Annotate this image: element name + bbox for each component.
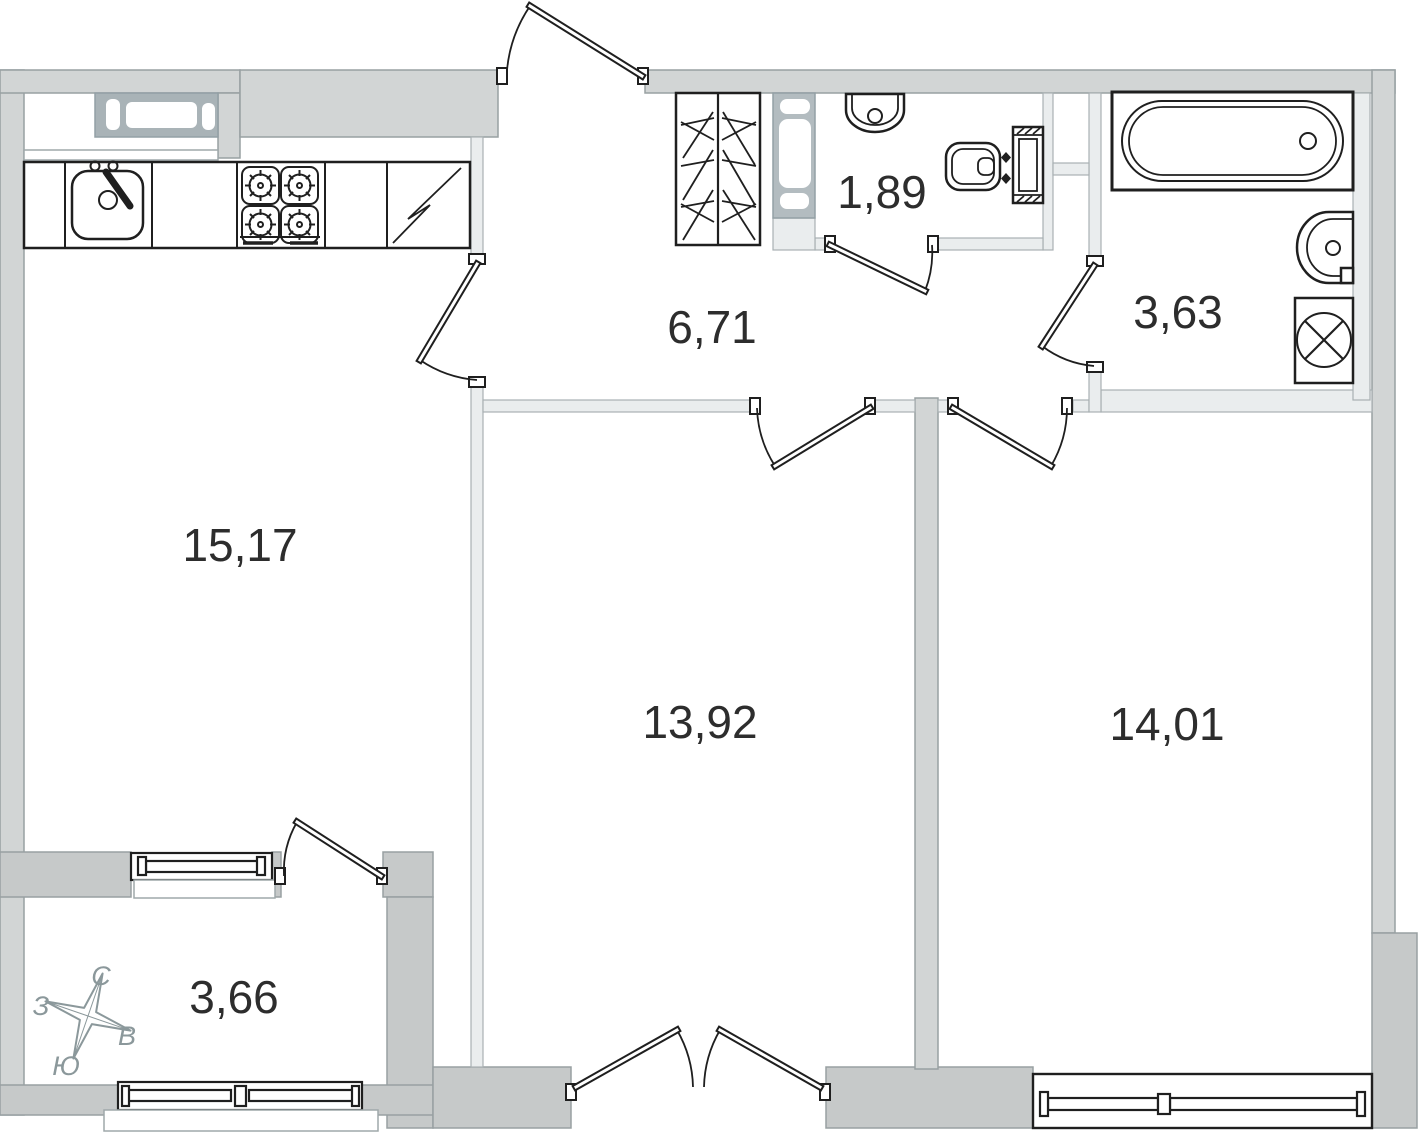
kitchen-window-sash-middle: [126, 102, 197, 128]
window2-cap-right: [1357, 1092, 1365, 1116]
vent-shaft: [773, 93, 815, 218]
toilet-washbasin: [846, 94, 904, 132]
wall-top-block: [240, 70, 498, 137]
window2-sash-right: [1170, 1098, 1357, 1110]
window2-mullion: [1158, 1094, 1170, 1114]
area-label-hallway: 6,71: [667, 301, 757, 353]
bathroom-washbasin: [1297, 212, 1353, 283]
kitchen-sink: [72, 162, 143, 240]
kitchen-window-sash-right: [202, 103, 215, 130]
area-label-balcony: 3,66: [189, 971, 279, 1023]
area-label-bedroom-1: 13,92: [642, 696, 757, 748]
window-sash: [146, 861, 258, 872]
wall-left: [0, 70, 24, 1115]
kitchen-window-sash-left: [106, 99, 120, 130]
wall-balcony-top-a: [0, 852, 131, 897]
partition-toilet-right: [1043, 93, 1053, 250]
partition-hall-b: [875, 400, 915, 412]
glazing-sash-left: [127, 1090, 231, 1101]
wall-central: [915, 398, 938, 1069]
floor-plan: 15,17 6,71 1,89 3,63 13,92 14,01 3,66 С …: [0, 0, 1428, 1134]
compass-north-label: С: [91, 961, 111, 991]
partition-kitchen-lower: [471, 385, 483, 1067]
wall-balcony-bottom-a: [0, 1085, 118, 1115]
partition-hall-d: [1073, 400, 1089, 412]
vent-slot-bottom: [780, 193, 809, 209]
glazing-sill: [104, 1110, 378, 1131]
floor-plan-page: 15,17 6,71 1,89 3,63 13,92 14,01 3,66 С …: [0, 0, 1428, 1134]
compass-east-label: В: [118, 1021, 136, 1051]
washing-machine: [1295, 298, 1353, 383]
wall-balcony-top-c: [383, 852, 433, 897]
bathtub: [1112, 92, 1353, 190]
area-label-toilet: 1,89: [837, 166, 927, 218]
area-label-bathroom: 3,63: [1133, 286, 1223, 338]
area-label-bedroom-2: 14,01: [1109, 698, 1224, 750]
glazing-sash-right: [249, 1090, 353, 1101]
window-sill: [134, 880, 275, 898]
balcony-living-window: [131, 853, 275, 898]
wall-top-left: [0, 70, 240, 93]
partition-bath-lining: [1353, 93, 1370, 400]
partition-bathroom-left-b: [1089, 372, 1101, 412]
wall-bottom-a: [433, 1067, 571, 1128]
partition-bathroom-bottom: [1101, 390, 1372, 412]
kitchen-window-sill: [24, 150, 218, 160]
glazing-cap-left: [122, 1086, 129, 1106]
vent-slot-middle: [779, 119, 811, 188]
kitchen-counter: [24, 162, 470, 249]
partition-kitchen-upper: [471, 137, 483, 258]
glazing-mullion: [235, 1086, 246, 1106]
wall-right: [1372, 70, 1395, 933]
window2-cap-left: [1040, 1092, 1048, 1116]
wall-bottom-b: [826, 1067, 1033, 1128]
wall-window-pier: [218, 93, 240, 158]
compass-south-label: Ю: [52, 1051, 80, 1081]
bedroom-2-window: [1033, 1074, 1372, 1128]
partition-hall-a: [483, 400, 755, 412]
window-cap-left: [138, 857, 146, 875]
glazing-cap-right: [352, 1086, 359, 1106]
basin-outer: [846, 94, 904, 132]
wardrobe: [676, 93, 760, 245]
partition-vent-connector: [773, 218, 815, 250]
window2-sash-left: [1048, 1098, 1158, 1110]
wall-right-lower: [1372, 933, 1417, 1128]
wall-top-right: [645, 70, 1395, 93]
area-label-kitchen-living: 15,17: [182, 519, 297, 571]
partition-bathroom-left-a: [1089, 93, 1101, 262]
bath-basin-ledge: [1341, 268, 1353, 283]
window-cap-right: [257, 857, 265, 875]
compass-west-label: З: [33, 991, 50, 1021]
vent-slot-top: [780, 99, 810, 114]
partition-niche-cap: [1053, 163, 1089, 175]
partition-toilet-bottom-b: [933, 238, 1043, 250]
balcony-glazing: [104, 1082, 378, 1131]
wc-bowl: [946, 143, 1000, 190]
